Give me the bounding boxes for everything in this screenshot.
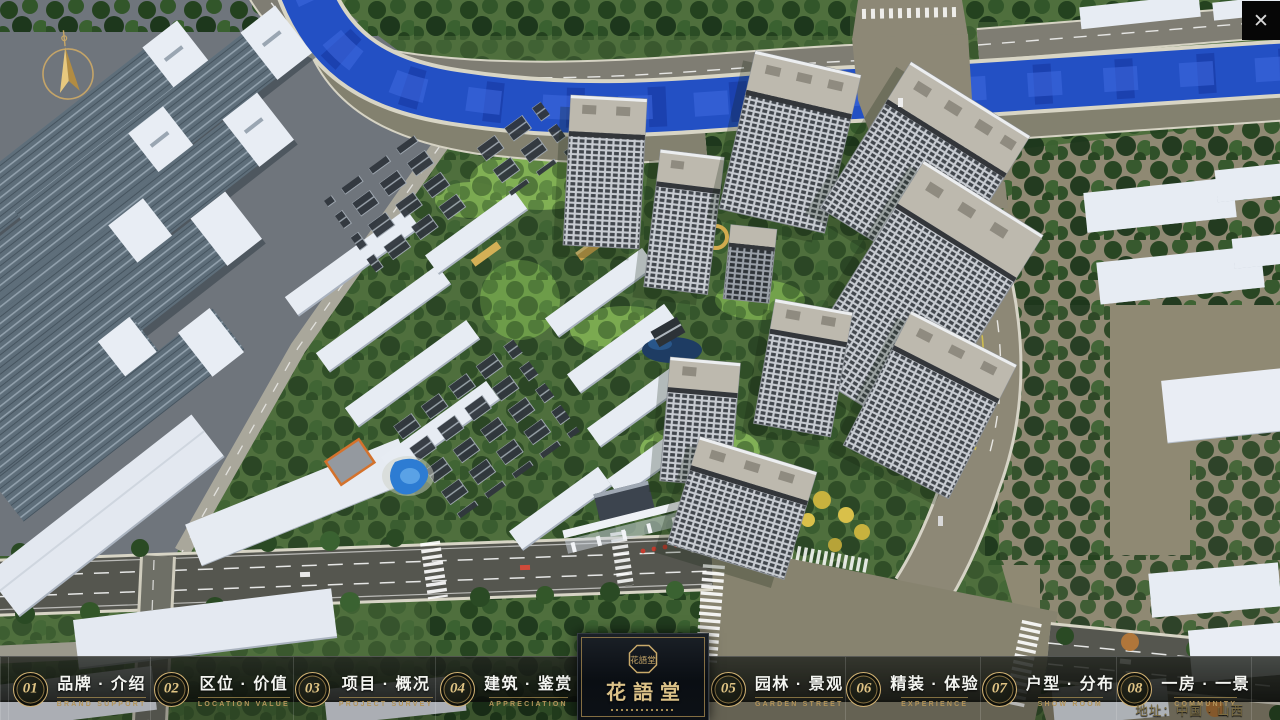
bottom-nav: 01 品牌 · 介绍 BRAND SUPPORT 02 区位 · 价值 LOCA… xyxy=(0,656,1280,702)
nav-item-floorplan-subtitle: SHOW ROOM xyxy=(1038,697,1103,708)
logo-name: 花語堂 xyxy=(606,676,687,705)
close-icon: ✕ xyxy=(1253,10,1269,32)
nav-left-edge xyxy=(0,657,8,720)
close-button[interactable]: ✕ xyxy=(1242,1,1280,40)
nav-item-architecture-title: 建筑 · 鉴赏 xyxy=(484,670,573,694)
nav-item-location-title: 区位 · 价值 xyxy=(200,670,289,694)
nav-item-architecture-subtitle: APPRECIATION xyxy=(489,697,568,708)
nav-item-project[interactable]: 03 项目 · 概况 PROJECT SURVEY xyxy=(293,657,435,720)
nav-item-garden-subtitle: GARDEN STREET xyxy=(755,697,844,708)
sales-presentation-screen: ✕ 01 品牌 · 介绍 BRAND SUPPORT 02 区位 · 价值 LO… xyxy=(0,0,1280,720)
nav-item-garden-badge: 05 xyxy=(711,672,746,707)
nav-item-location-badge: 02 xyxy=(154,672,189,707)
logo-panel[interactable]: 花語堂 花語堂 xyxy=(577,633,709,720)
logo-subtext-decoration xyxy=(611,709,675,711)
nav-right-edge xyxy=(1251,657,1280,720)
nav-item-interior[interactable]: 06 精装 · 体验 EXPERIENCE xyxy=(845,657,981,720)
nav-item-project-title: 项目 · 概况 xyxy=(342,670,431,694)
nav-item-floorplan[interactable]: 07 户型 · 分布 SHOW ROOM xyxy=(980,657,1116,720)
nav-item-brand[interactable]: 01 品牌 · 介绍 BRAND SUPPORT xyxy=(8,657,150,720)
nav-item-project-badge: 03 xyxy=(295,672,330,707)
address-text: 地址：中国 · 山西 xyxy=(1135,700,1244,719)
nav-item-interior-subtitle: EXPERIENCE xyxy=(901,697,968,708)
nav-item-location-subtitle: LOCATION VALUE xyxy=(198,697,290,708)
svg-text:花語堂: 花語堂 xyxy=(630,655,656,666)
nav-item-architecture[interactable]: 04 建筑 · 鉴赏 APPRECIATION xyxy=(435,657,577,720)
nav-item-garden-title: 园林 · 景观 xyxy=(755,670,844,694)
nav-item-brand-title: 品牌 · 介绍 xyxy=(57,670,146,694)
nav-item-architecture-badge: 04 xyxy=(440,672,475,707)
nav-item-brand-subtitle: BRAND SUPPORT xyxy=(57,697,147,708)
nav-item-brand-badge: 01 xyxy=(13,672,48,707)
nav-item-garden[interactable]: 05 园林 · 景观 GARDEN STREET xyxy=(709,657,845,720)
nav-item-interior-title: 精装 · 体验 xyxy=(890,670,979,694)
nav-item-interior-badge: 06 xyxy=(846,672,881,707)
logo-seal-icon: 花語堂 xyxy=(628,644,658,674)
nav-item-room-view-title: 一房 · 一景 xyxy=(1161,670,1250,694)
nav-item-project-subtitle: PROJECT SURVEY xyxy=(339,697,433,708)
nav-item-floorplan-badge: 07 xyxy=(982,672,1017,707)
masterplan-render xyxy=(0,0,1280,720)
nav-item-floorplan-title: 户型 · 分布 xyxy=(1026,670,1115,694)
nav-item-location[interactable]: 02 区位 · 价值 LOCATION VALUE xyxy=(150,657,292,720)
